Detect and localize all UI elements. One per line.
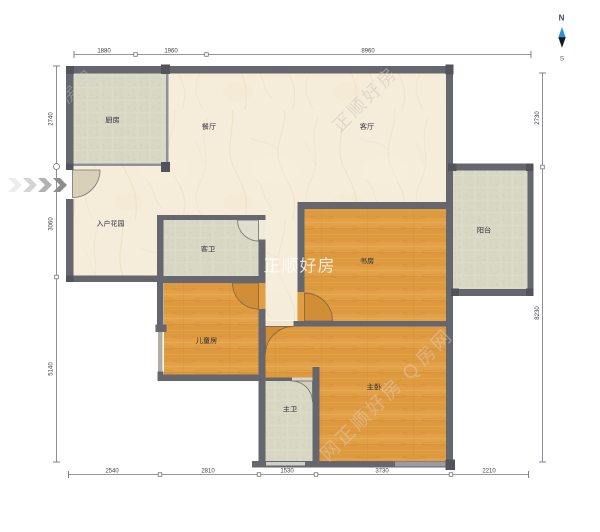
svg-text:8960: 8960 [361, 49, 375, 55]
svg-text:1880: 1880 [97, 49, 111, 55]
svg-text:2540: 2540 [105, 468, 119, 474]
svg-text:2810: 2810 [201, 468, 215, 474]
svg-text:5140: 5140 [49, 362, 55, 376]
svg-text:1530: 1530 [280, 468, 294, 474]
svg-text:S: S [560, 56, 565, 63]
svg-text:2210: 2210 [482, 468, 496, 474]
svg-text:N: N [559, 14, 565, 23]
svg-text:8230: 8230 [535, 306, 541, 320]
svg-text:2730: 2730 [535, 111, 541, 125]
svg-text:1960: 1960 [164, 49, 178, 55]
svg-text:3730: 3730 [375, 468, 389, 474]
svg-text:3060: 3060 [49, 217, 55, 231]
svg-text:2740: 2740 [49, 112, 55, 126]
